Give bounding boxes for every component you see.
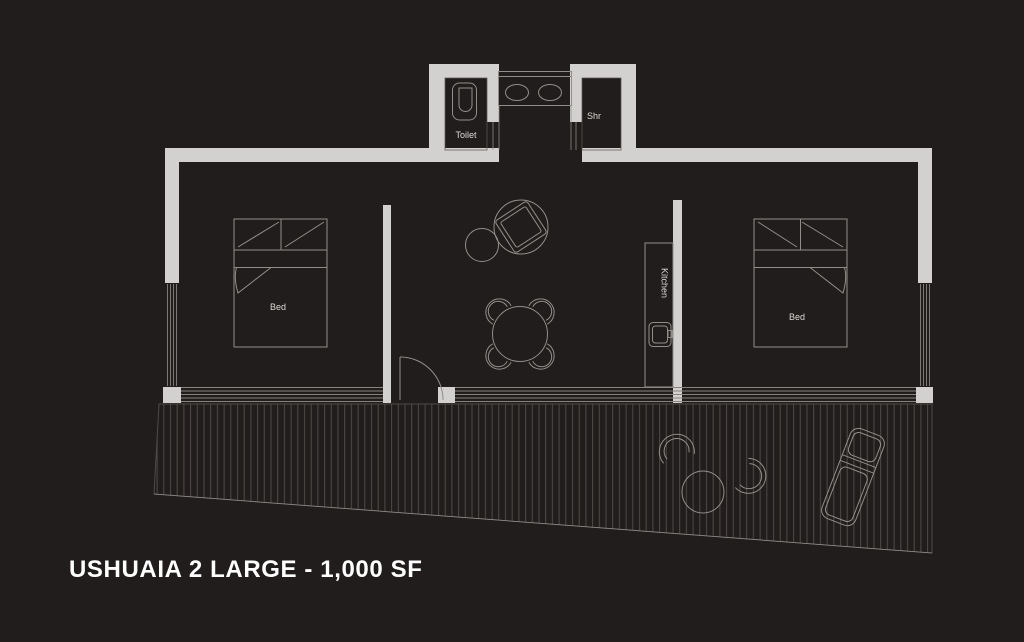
dining-set (480, 293, 559, 374)
window-left (168, 284, 177, 386)
bed-right (754, 219, 847, 347)
bed-left (234, 219, 327, 347)
wall-bumpout-right (621, 64, 636, 162)
bedroom-right-label: Bed (789, 312, 805, 322)
floorplan-page: Toilet Shr Bed Bed Kitchen USHUAIA 2 LAR… (0, 0, 1024, 642)
wall-left (165, 148, 179, 283)
toilet-fixture (453, 83, 477, 120)
wall-toilet-right (487, 64, 499, 122)
kitchen-label: Kitchen (660, 268, 670, 298)
floorplan-drawing: Toilet Shr Bed Bed Kitchen (0, 0, 1024, 642)
kitchen-counter (645, 243, 673, 387)
post-right (916, 387, 933, 403)
sliding-glass-doors (181, 388, 916, 402)
entry-door (400, 357, 443, 400)
side-table (466, 229, 499, 262)
vanity-sink-left (506, 85, 529, 101)
wall-bumpout-left (429, 64, 445, 162)
kitchen-sink (649, 323, 672, 347)
vanity-sink-right (539, 85, 562, 101)
blanket-fold (810, 268, 846, 294)
walls (163, 64, 933, 403)
window-right (921, 284, 930, 386)
partition-left (383, 205, 391, 403)
wall-top-right (630, 148, 932, 162)
wall-top-left (165, 148, 433, 162)
deck (154, 404, 932, 553)
bedroom-left-label: Bed (270, 302, 286, 312)
toilet-label: Toilet (455, 130, 477, 140)
plan-title: USHUAIA 2 LARGE - 1,000 SF (69, 556, 422, 584)
vanity-counter (499, 72, 572, 151)
post-entry-door (438, 387, 455, 403)
armchair (494, 200, 548, 254)
post-left (163, 387, 181, 403)
partition-right (673, 200, 682, 403)
dining-table (493, 307, 548, 362)
wall-right (918, 148, 932, 283)
shower-label: Shr (587, 111, 601, 121)
blanket-fold (235, 268, 271, 294)
